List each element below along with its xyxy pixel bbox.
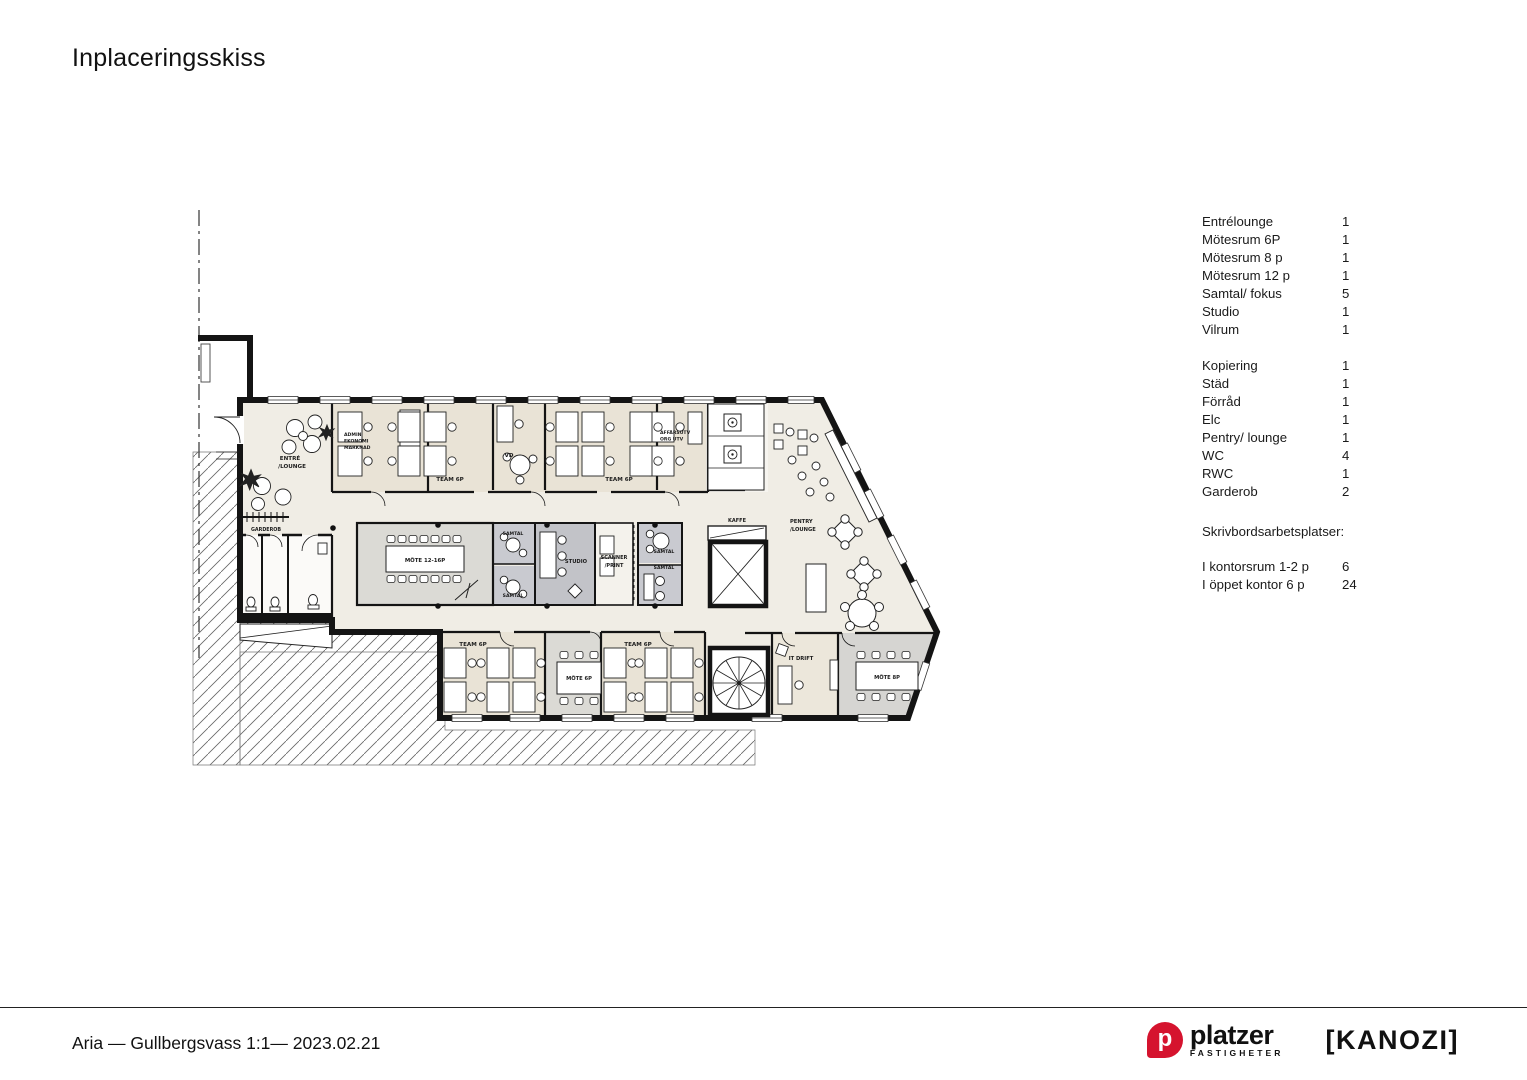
svg-text:ORG UTV: ORG UTV: [660, 437, 684, 443]
room-label-samtal-br: SAMTAL: [654, 565, 675, 571]
room-label-mote6: MÖTE 6P: [566, 675, 592, 682]
room-label-itdrift: IT DRIFT: [789, 656, 814, 662]
legend-row: Kopiering1: [1202, 357, 1364, 375]
legend-row: Elc1: [1202, 411, 1364, 429]
legend-row: Garderob2: [1202, 483, 1364, 501]
legend-row: Förråd1: [1202, 393, 1364, 411]
elevator-shaft: [708, 526, 766, 606]
platzer-mark-icon: p: [1147, 1022, 1183, 1058]
room-label-kaffe: KAFFE: [728, 518, 747, 524]
platzer-subtitle: FASTIGHETER: [1190, 1048, 1284, 1058]
room-label-garderob: GARDEROB: [251, 527, 281, 533]
legend-row: Mötesrum 12 p1: [1202, 267, 1364, 285]
project-title: Aria — Gullbergsvass 1:1— 2023.02.21: [72, 1033, 380, 1054]
page-title: Inplaceringsskiss: [72, 44, 266, 73]
kitchen-counter: [708, 404, 764, 490]
room-label-samtal-tl: SAMTAL: [503, 531, 524, 537]
desks-section-title: Skrivbordsarbetsplatser:: [1202, 523, 1372, 541]
room-label-scanner: SCANNER: [601, 555, 628, 561]
room-label-team6p-bot-right: TEAM 6P: [624, 642, 651, 648]
platzer-logo: p platzer FASTIGHETER: [1147, 1022, 1284, 1058]
footer-rule: [0, 1007, 1527, 1008]
room-label-affarsutv: AFFÄRSUTV: [660, 429, 691, 436]
room-label-team6p-top-right: TEAM 6P: [605, 477, 632, 483]
platzer-wordmark: platzer: [1190, 1023, 1284, 1047]
drawing-sheet: Inplaceringsskiss: [0, 0, 1527, 1080]
room-label-team6p-bot-left: TEAM 6P: [459, 642, 486, 648]
svg-text:/LOUNGE: /LOUNGE: [278, 464, 306, 470]
legend-row: WC4: [1202, 447, 1364, 465]
room-label-samtal-tr: SAMTAL: [654, 549, 675, 555]
room-label-samtal-bl: SAMTAL: [503, 593, 524, 599]
legend-row: Mötesrum 8 p1: [1202, 249, 1364, 267]
floor-plan: ENTRÉ /LOUNGE ADMIN EKONOMI MARKNAD TEAM…: [185, 195, 950, 800]
svg-text:/PRINT: /PRINT: [605, 563, 624, 569]
svg-text:MARKNAD: MARKNAD: [344, 445, 371, 451]
room-label-vd: VD: [505, 453, 514, 459]
spiral-stair: [710, 648, 768, 715]
canopy-corner: [198, 338, 250, 400]
island-table: [806, 564, 826, 612]
room-label-entre: ENTRÉ: [280, 454, 301, 462]
room-label-team6p-top-left: TEAM 6P: [436, 477, 463, 483]
legend-row: Entrélounge1: [1202, 213, 1364, 231]
room-label-pentry: PENTRY: [790, 519, 813, 525]
legend-row: Städ1: [1202, 375, 1364, 393]
svg-text:EKONOMI: EKONOMI: [344, 439, 369, 445]
desk-row: I kontorsrum 1-2 p6: [1202, 558, 1364, 576]
room-label-admin: ADMIN: [344, 432, 362, 438]
room-label-mote8: MÖTE 8P: [874, 674, 900, 681]
legend-row: Vilrum1: [1202, 321, 1364, 339]
legend-row: Samtal/ fokus5: [1202, 285, 1364, 303]
room-label-mote12: MÖTE 12-16P: [405, 557, 445, 564]
footer-logos: p platzer FASTIGHETER [KANOZI]: [1147, 1022, 1459, 1058]
legend-row: RWC1: [1202, 465, 1364, 483]
room-label-studio: STUDIO: [565, 559, 588, 565]
svg-text:/LOUNGE: /LOUNGE: [790, 527, 816, 533]
floor-plan-svg: ENTRÉ /LOUNGE ADMIN EKONOMI MARKNAD TEAM…: [185, 195, 950, 800]
desk-row: I öppet kontor 6 p24: [1202, 576, 1364, 594]
room-legend: Entrélounge1 Mötesrum 6P1 Mötesrum 8 p1 …: [1202, 213, 1372, 594]
legend-row: Studio1: [1202, 303, 1364, 321]
legend-row: Mötesrum 6P1: [1202, 231, 1364, 249]
legend-row: Pentry/ lounge1: [1202, 429, 1364, 447]
kanozi-logo: [KANOZI]: [1326, 1025, 1459, 1056]
